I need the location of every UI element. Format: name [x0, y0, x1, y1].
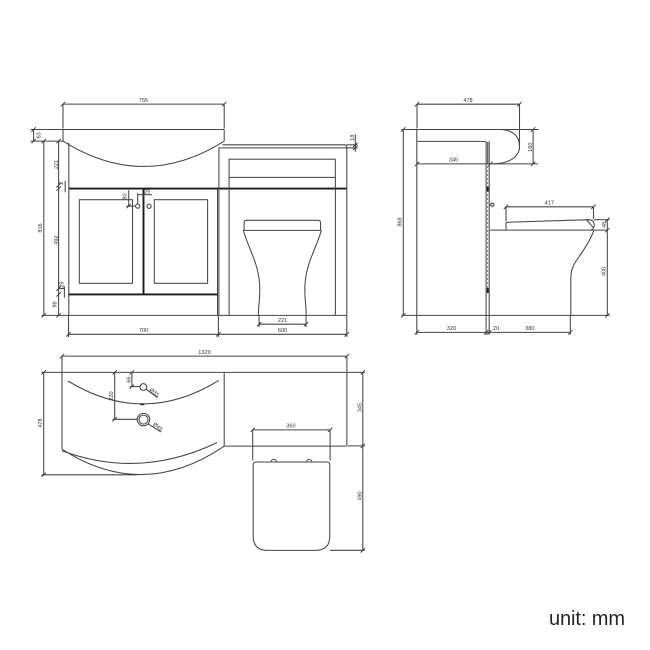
- svg-text:18: 18: [350, 135, 356, 141]
- svg-text:25: 25: [144, 189, 150, 195]
- svg-text:400: 400: [601, 267, 607, 276]
- svg-text:221: 221: [278, 318, 287, 324]
- svg-text:160: 160: [528, 143, 534, 152]
- svg-text:360: 360: [286, 424, 295, 430]
- svg-text:20: 20: [493, 326, 499, 332]
- svg-text:1329: 1329: [198, 350, 210, 356]
- svg-text:48: 48: [602, 222, 608, 228]
- svg-text:700: 700: [139, 328, 148, 334]
- svg-text:490: 490: [357, 491, 363, 500]
- svg-text:417: 417: [545, 201, 554, 207]
- svg-text:2: 2: [59, 182, 65, 185]
- svg-text:492: 492: [54, 235, 60, 244]
- svg-text:320: 320: [447, 326, 456, 332]
- svg-text:221: 221: [54, 160, 60, 169]
- svg-text:63: 63: [37, 132, 43, 138]
- svg-text:220: 220: [109, 391, 115, 400]
- svg-text:868: 868: [398, 217, 404, 226]
- svg-text:Ø45: Ø45: [151, 422, 163, 433]
- svg-text:478: 478: [38, 418, 44, 427]
- svg-text:816: 816: [38, 223, 44, 232]
- svg-text:Ø35: Ø35: [148, 387, 160, 398]
- svg-text:98: 98: [53, 301, 59, 307]
- svg-text:380: 380: [525, 326, 534, 332]
- svg-text:345: 345: [449, 158, 458, 164]
- svg-text:600: 600: [278, 328, 287, 334]
- svg-text:478: 478: [463, 98, 472, 104]
- svg-text:66: 66: [126, 376, 132, 382]
- svg-text:345: 345: [357, 403, 363, 412]
- svg-text:28: 28: [60, 282, 66, 288]
- svg-text:80: 80: [122, 193, 128, 199]
- svg-text:unit: mm: unit: mm: [549, 608, 625, 630]
- svg-text:755: 755: [139, 98, 148, 104]
